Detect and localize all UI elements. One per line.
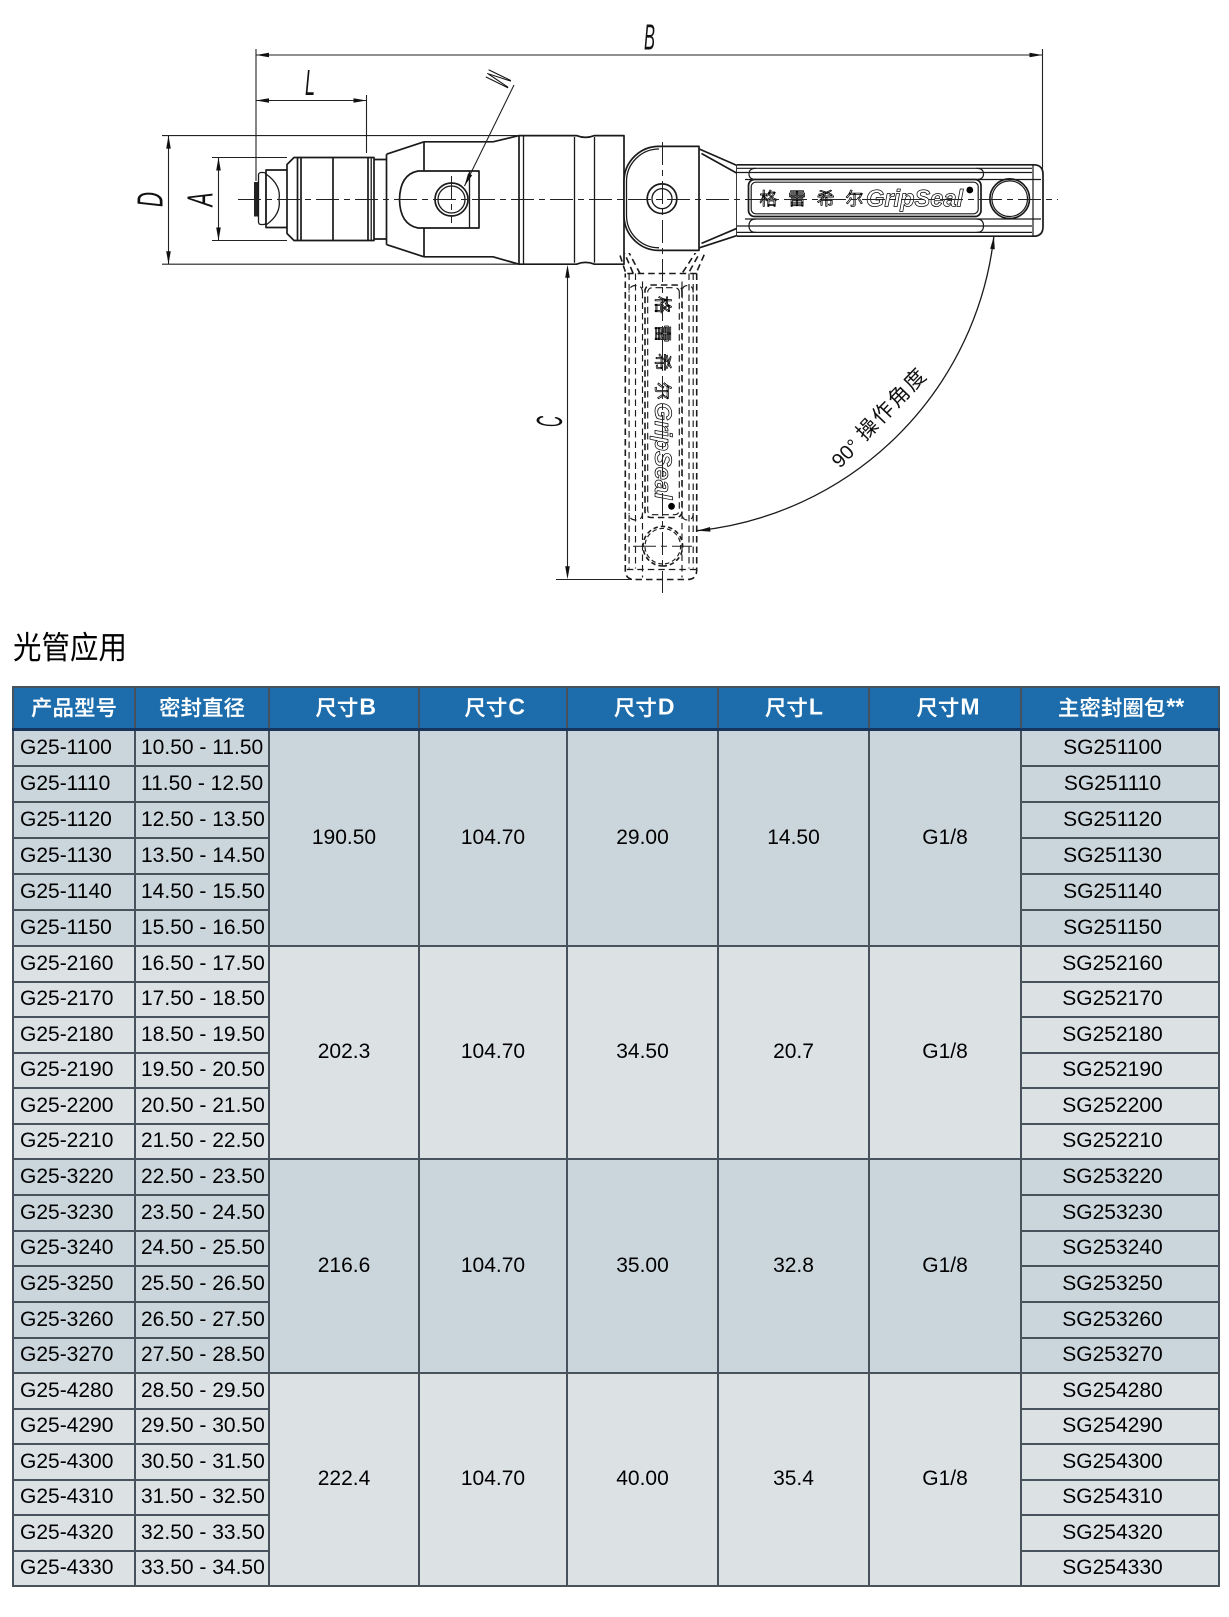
svg-text:M: M [960, 694, 979, 720]
svg-text:M: M [478, 66, 520, 92]
svg-text:B: B [359, 694, 376, 720]
svg-text:A: A [180, 193, 221, 208]
svg-text:D: D [658, 694, 675, 720]
svg-text:**: ** [1166, 694, 1184, 720]
svg-text:L: L [305, 62, 315, 103]
svg-text:D: D [130, 192, 171, 207]
svg-text:90°: 90° [828, 435, 865, 472]
svg-text:C: C [529, 416, 570, 427]
svg-text:C: C [508, 694, 525, 720]
svg-text:L: L [809, 694, 823, 720]
svg-text:B: B [644, 17, 655, 58]
